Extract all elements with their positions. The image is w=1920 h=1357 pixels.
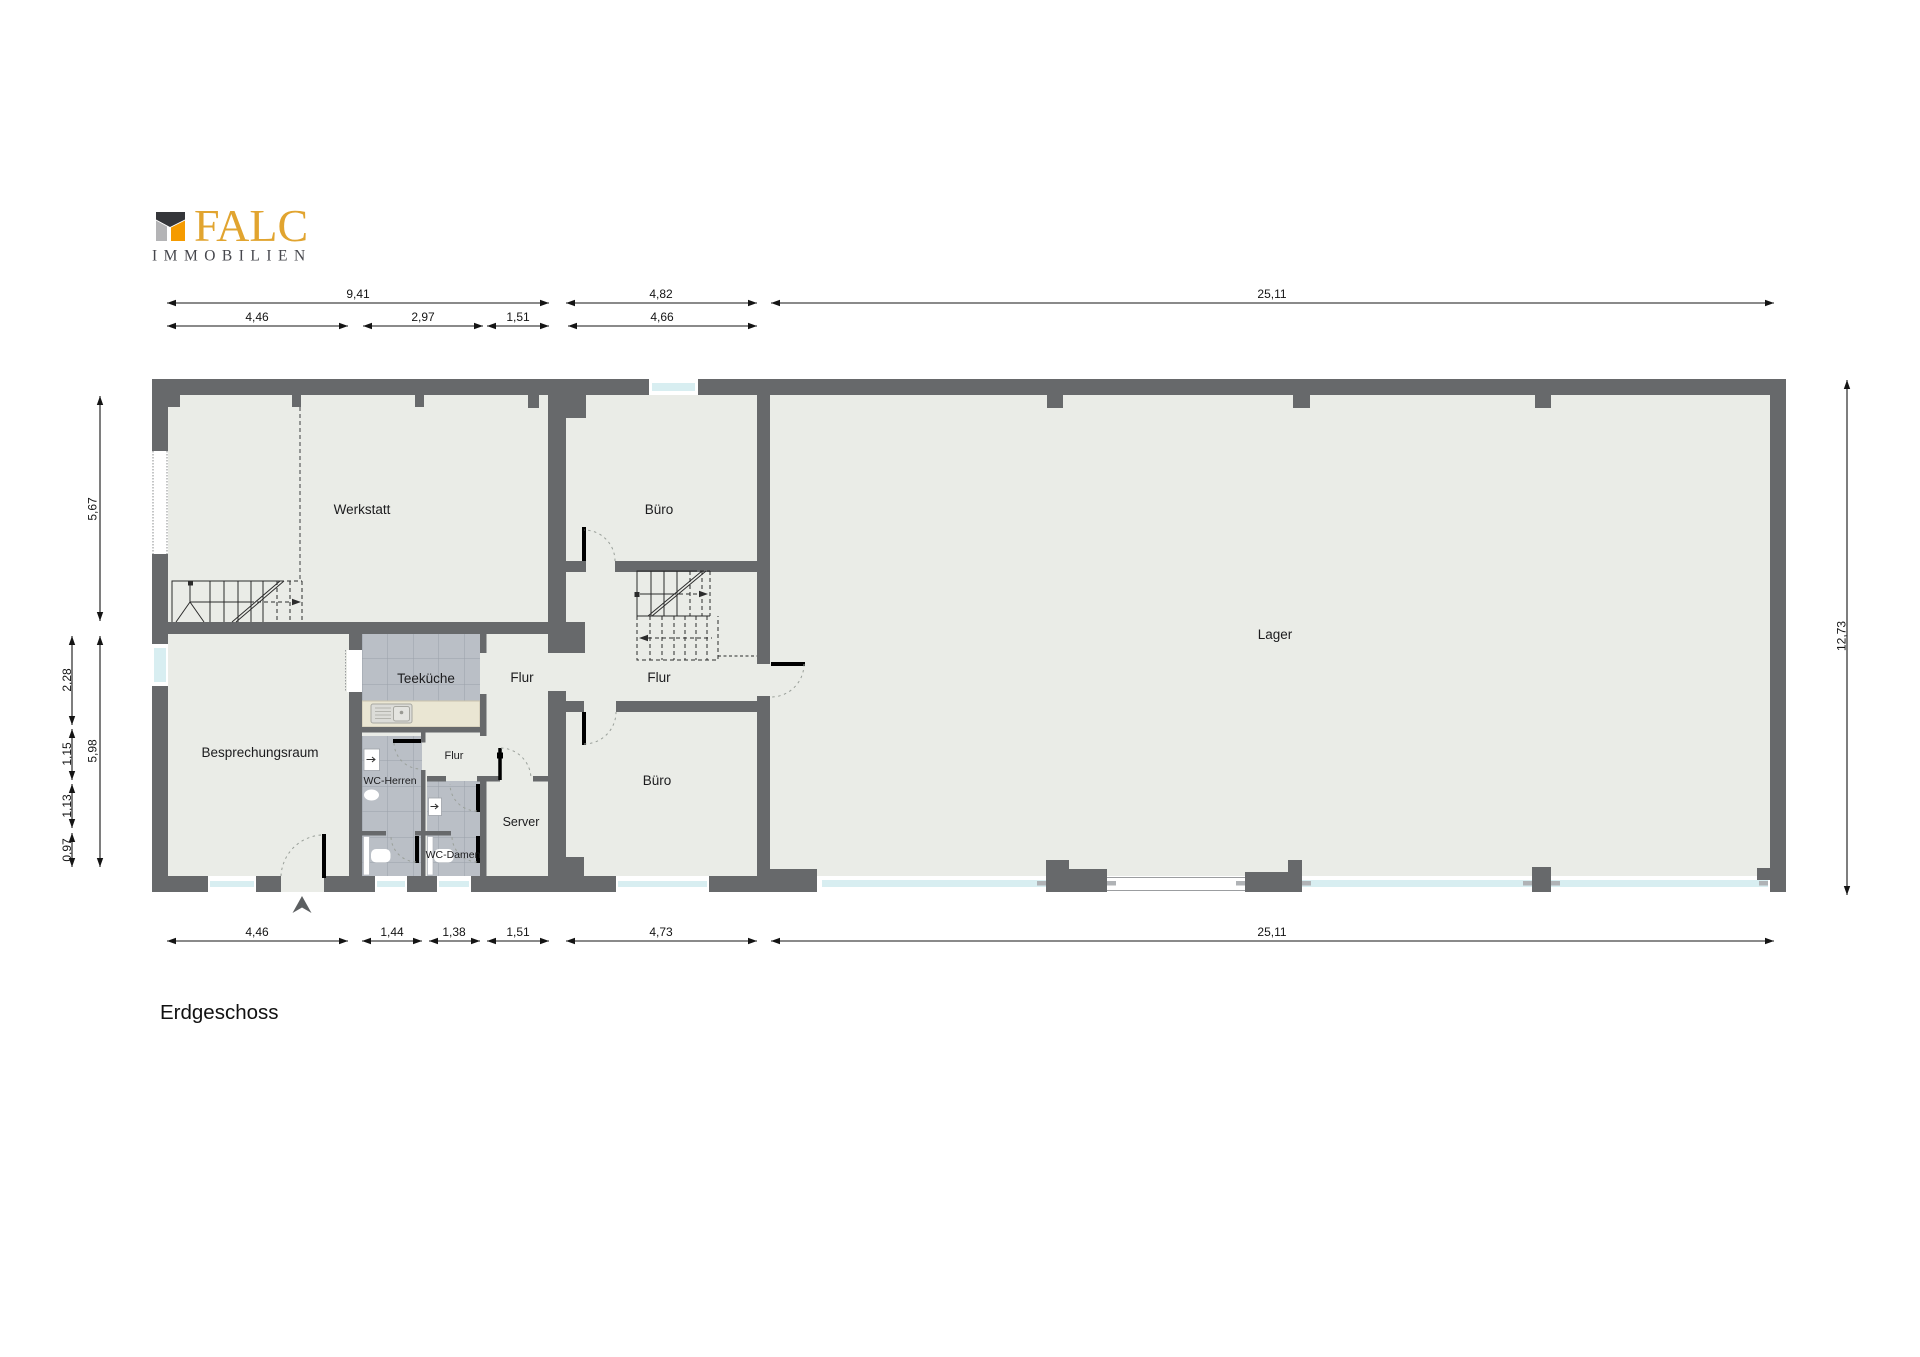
svg-text:Teeküche: Teeküche: [397, 671, 455, 686]
svg-text:1,44: 1,44: [380, 925, 404, 939]
svg-text:5,98: 5,98: [86, 739, 100, 763]
svg-text:Flur: Flur: [647, 670, 671, 685]
svg-text:Besprechungsraum: Besprechungsraum: [201, 745, 318, 760]
svg-text:4,82: 4,82: [649, 287, 673, 301]
svg-text:Büro: Büro: [645, 502, 674, 517]
svg-text:Werkstatt: Werkstatt: [334, 502, 391, 517]
svg-text:4,73: 4,73: [649, 925, 673, 939]
svg-text:25,11: 25,11: [1257, 287, 1286, 301]
svg-text:12,73: 12,73: [1835, 621, 1849, 651]
svg-text:4,66: 4,66: [650, 310, 674, 324]
svg-text:Lager: Lager: [1258, 627, 1293, 642]
svg-text:Büro: Büro: [643, 773, 672, 788]
svg-text:1,38: 1,38: [442, 925, 466, 939]
svg-text:4,46: 4,46: [245, 925, 269, 939]
svg-text:25,11: 25,11: [1257, 925, 1286, 939]
svg-text:IMMOBILIEN: IMMOBILIEN: [152, 248, 312, 265]
svg-text:WC-Damen: WC-Damen: [426, 849, 481, 861]
svg-text:1,13: 1,13: [60, 794, 74, 818]
svg-text:4,46: 4,46: [245, 310, 269, 324]
svg-text:5,67: 5,67: [86, 497, 100, 521]
svg-text:2,28: 2,28: [60, 668, 74, 692]
svg-text:Flur: Flur: [445, 750, 464, 762]
svg-text:1,51: 1,51: [506, 925, 530, 939]
svg-text:Flur: Flur: [510, 670, 534, 685]
svg-text:9,41: 9,41: [346, 287, 370, 301]
svg-text:1,15: 1,15: [60, 742, 74, 766]
svg-text:WC-Herren: WC-Herren: [363, 775, 416, 787]
svg-text:2,97: 2,97: [411, 310, 435, 324]
svg-text:0,97: 0,97: [60, 838, 74, 862]
svg-text:Erdgeschoss: Erdgeschoss: [160, 1001, 279, 1024]
svg-text:Server: Server: [503, 815, 540, 829]
svg-text:1,51: 1,51: [506, 310, 530, 324]
svg-text:FALC: FALC: [194, 200, 308, 251]
